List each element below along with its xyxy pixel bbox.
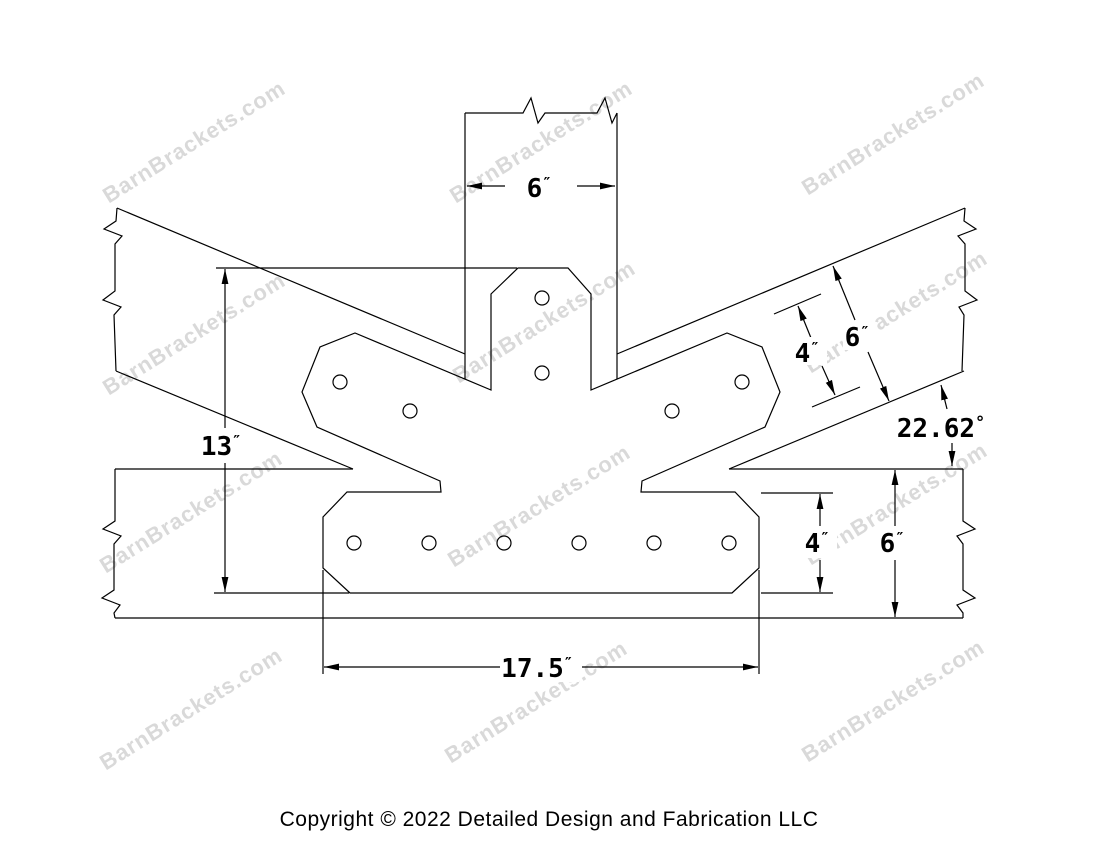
- beam-break-edge-right: [957, 469, 975, 618]
- bolt-hole: [535, 366, 549, 380]
- watermark: BarnBrackets.com: [443, 439, 635, 572]
- extension-line: [774, 294, 821, 314]
- dim-line: [868, 352, 889, 401]
- watermark: BarnBrackets.com: [98, 267, 290, 400]
- extension-line: [812, 387, 860, 407]
- dim-unit-mark: ″: [895, 529, 904, 547]
- left-strut: [103, 208, 465, 469]
- dim-unit-mark: ″: [820, 529, 829, 547]
- dim-unit-mark: ″: [542, 174, 551, 192]
- left-strut-top-edge: [117, 208, 465, 354]
- dim-value: 17.5: [501, 654, 564, 684]
- watermark: BarnBrackets.com: [95, 642, 287, 775]
- dim-value: 13: [201, 432, 232, 462]
- bolt-hole: [422, 536, 436, 550]
- dim-value: 4: [805, 529, 821, 559]
- watermark: BarnBrackets.com: [797, 634, 989, 767]
- watermark: BarnBrackets.com: [95, 445, 287, 578]
- dim-unit-mark: ″: [860, 323, 869, 341]
- right-strut-break-edge: [958, 208, 977, 371]
- dim-value: 22.62: [897, 414, 975, 444]
- bolt-hole: [333, 375, 347, 389]
- watermark: BarnBrackets.com: [797, 67, 989, 200]
- bolt-hole: [403, 404, 417, 418]
- left-strut-break-edge: [103, 208, 122, 371]
- dim-text-backgrounds: [198, 171, 912, 682]
- dim-text-layer: 6″ 13″ 4″ 6″ 22.62° 4″ 6″ 17.5″: [201, 174, 985, 684]
- bolt-hole: [665, 404, 679, 418]
- copyright-text: Copyright © 2022 Detailed Design and Fab…: [280, 808, 819, 831]
- dim-value: 6: [845, 323, 861, 353]
- dim-unit-mark: ″: [810, 339, 819, 357]
- dim-value: 6: [880, 529, 896, 559]
- bolt-hole: [347, 536, 361, 550]
- dim-line: [833, 266, 855, 320]
- technical-drawing: BarnBrackets.com BarnBrackets.com BarnBr…: [0, 0, 1100, 850]
- dim-value: 4: [795, 339, 811, 369]
- dim-label-roof-angle: 22.62°: [897, 413, 986, 444]
- dim-value: 6: [527, 174, 543, 204]
- leader-line: [941, 385, 947, 409]
- dim-label-plate-length: 17.5″: [501, 654, 573, 684]
- bolt-hole: [647, 536, 661, 550]
- bolt-hole: [535, 291, 549, 305]
- watermark: BarnBrackets.com: [448, 255, 640, 388]
- drawing-sheet: BarnBrackets.com BarnBrackets.com BarnBr…: [0, 0, 1100, 850]
- dim-line: [822, 366, 835, 395]
- dim-line: [798, 306, 811, 338]
- bolt-hole: [572, 536, 586, 550]
- right-strut-top-edge: [617, 208, 965, 354]
- dim-unit-mark: ″: [564, 654, 573, 672]
- dim-unit-mark: °: [975, 413, 985, 433]
- bolt-hole: [735, 375, 749, 389]
- watermark: BarnBrackets.com: [98, 75, 290, 208]
- dim-unit-mark: ″: [232, 432, 241, 450]
- bolt-hole: [722, 536, 736, 550]
